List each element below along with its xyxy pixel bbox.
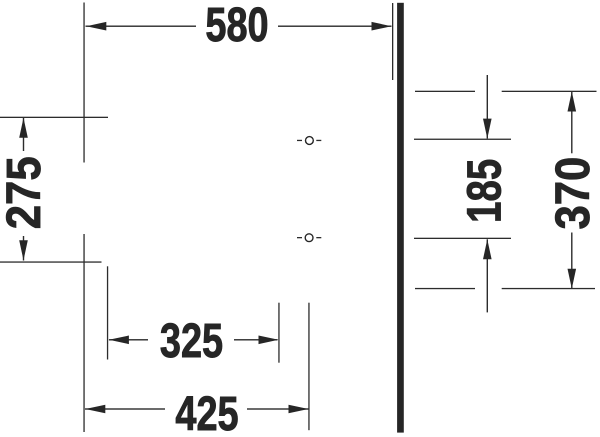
svg-text:580: 580 xyxy=(205,0,268,52)
svg-text:325: 325 xyxy=(160,315,223,368)
svg-text:185: 185 xyxy=(459,159,512,223)
svg-text:425: 425 xyxy=(175,388,238,437)
svg-text:370: 370 xyxy=(545,157,599,230)
svg-text:275: 275 xyxy=(0,156,51,229)
